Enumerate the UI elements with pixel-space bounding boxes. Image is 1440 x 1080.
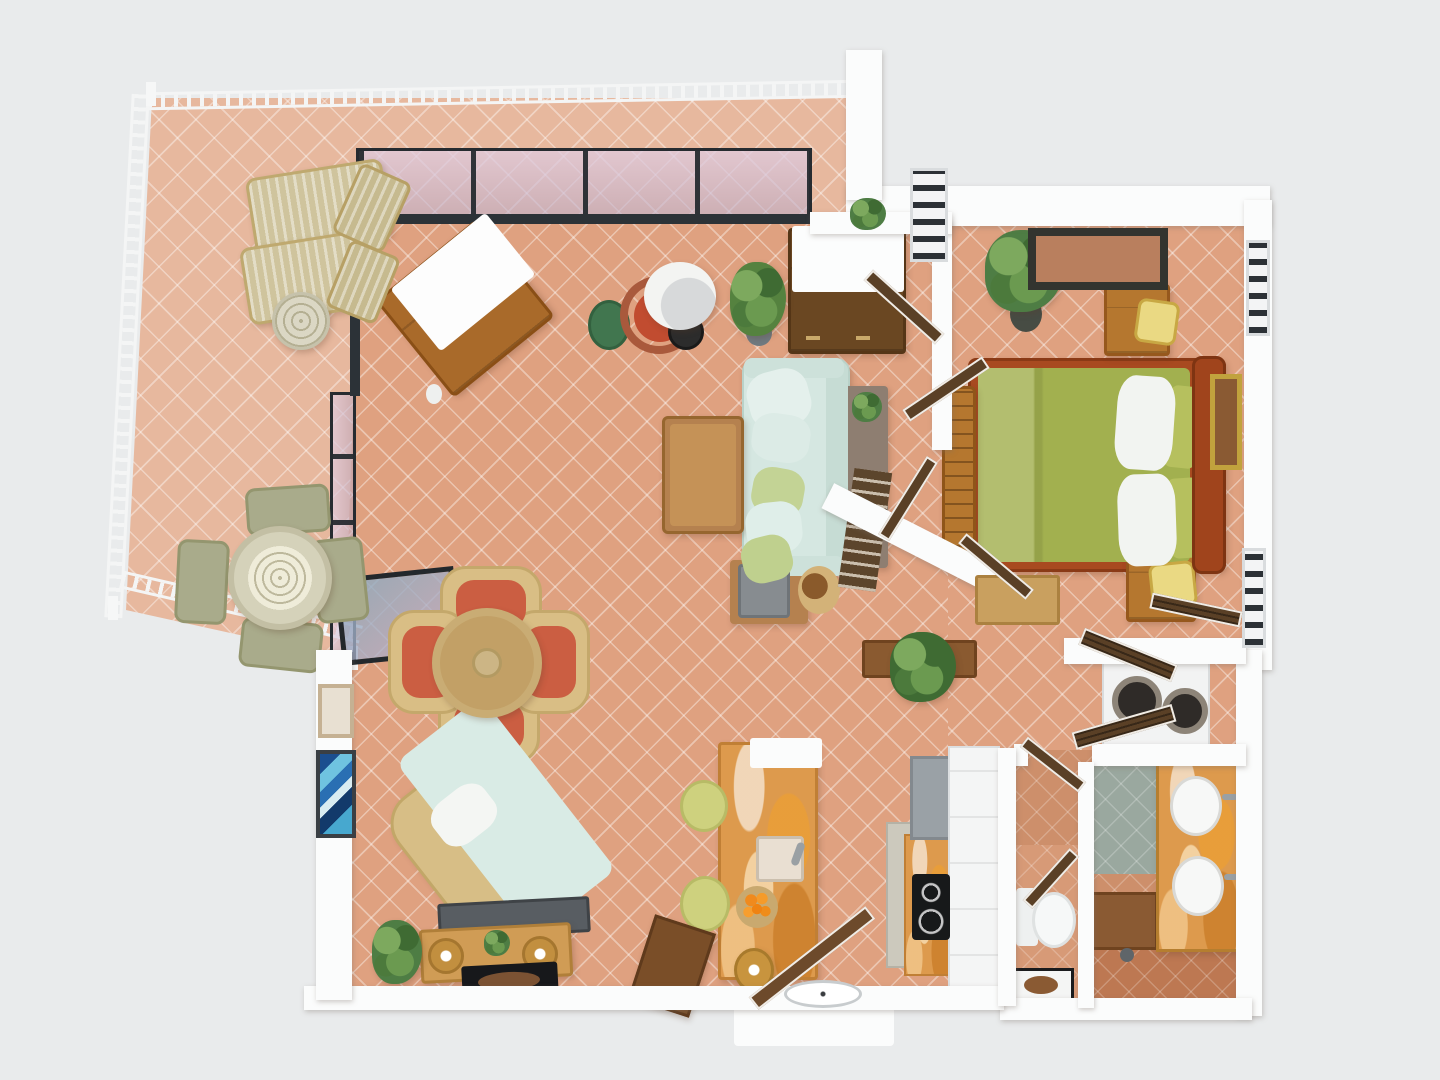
wall-bottom-living (304, 986, 1004, 1010)
balcony-side-table (272, 292, 330, 350)
dresser-handle-right (856, 336, 870, 340)
floor-plan-render (0, 0, 1440, 1080)
bed-pillow-white-2 (1116, 473, 1177, 567)
bath-wood-ledge (1086, 892, 1158, 950)
table-lamp-north (1133, 297, 1181, 346)
glass-wall-top-sill (356, 214, 812, 224)
railing-post-nw (146, 82, 156, 106)
wall-bottom-bath (1000, 998, 1252, 1020)
coffee-table-top (670, 424, 736, 526)
shower-tile-area (1086, 762, 1156, 874)
wall-right-bath (1236, 650, 1262, 1016)
sideboard-lamp-gold-left (428, 938, 464, 974)
dresser-handle-left (806, 336, 820, 340)
vanity-sink-2 (1172, 856, 1224, 916)
wall-wc-bath-divider (1078, 762, 1094, 1008)
outdoor-dining-chair-west (174, 539, 230, 626)
bar-stool-2 (680, 876, 730, 932)
white-jar (426, 384, 442, 404)
entry-window-slatted (910, 168, 948, 262)
tall-white-cabinets (948, 746, 1000, 1004)
bedroom-window-south (1242, 548, 1266, 648)
wall-mirror-left (318, 684, 354, 738)
floor-lamp-shade (644, 262, 716, 330)
bar-stool-1 (680, 780, 728, 832)
cooktop (912, 874, 950, 940)
wall-entry-vertical (846, 50, 882, 200)
floor-drain (1120, 948, 1134, 962)
bedroom-window-north (1246, 240, 1270, 336)
framed-picture-gold (1210, 374, 1242, 470)
crescent-basket (798, 566, 840, 614)
fruit-bowl-oranges (736, 886, 778, 928)
wc-mat-motif (1024, 976, 1058, 994)
glass-wall-top (356, 148, 812, 220)
wall-clock (784, 980, 862, 1008)
vanity-sink-1 (1170, 776, 1222, 836)
abstract-painting-blue (316, 750, 356, 838)
dining-table-hub (472, 648, 502, 678)
outdoor-dining-table-lace-top (248, 546, 312, 610)
wall-corridor-bath-right (1092, 744, 1246, 766)
wall-kitchen-right (998, 748, 1016, 1006)
railing-post-sw (108, 596, 118, 620)
island-end-cap (750, 738, 822, 768)
bed-pillow-white-1 (1113, 374, 1177, 472)
bedroom-wall-mirror-tv (1028, 228, 1168, 290)
